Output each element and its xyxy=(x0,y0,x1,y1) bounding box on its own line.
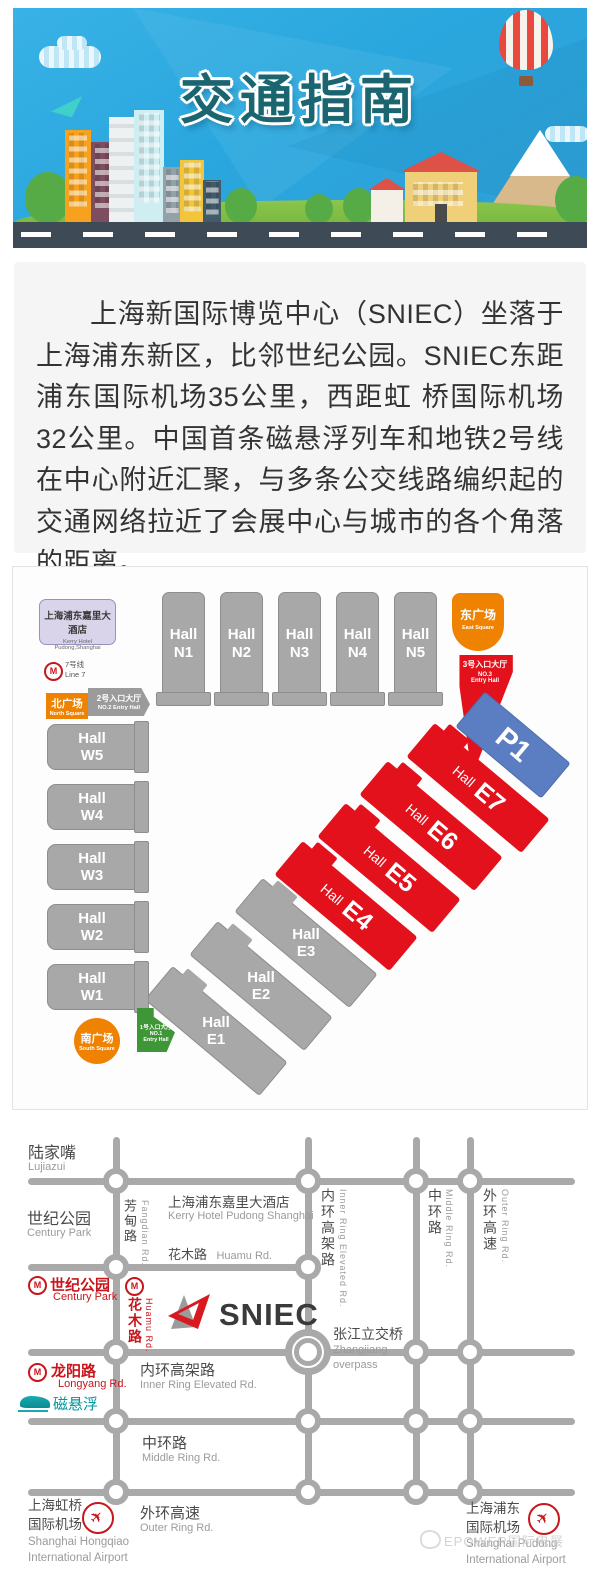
metro-icon xyxy=(125,1277,144,1296)
lujiazui-label: 陆家嘴 xyxy=(28,1139,76,1163)
junction xyxy=(403,1408,429,1434)
page-title: 交通指南 xyxy=(13,58,587,134)
middle-ring-h-label-en: Middle Ring Rd. xyxy=(142,1452,220,1464)
outer-ring-v-label: 外环高速 xyxy=(480,1188,500,1252)
hongqiao-airport-label-en2: International Airport xyxy=(28,1552,128,1564)
junction xyxy=(103,1168,129,1194)
metro-icon xyxy=(28,1276,47,1295)
hall-e2-label: HallE2 xyxy=(231,969,291,1004)
hall-e1-label: HallE1 xyxy=(186,1014,246,1049)
junction xyxy=(295,1408,321,1434)
maglev-label: 磁悬浮 xyxy=(53,1393,98,1414)
inner-ring-h-label-en: Inner Ring Elevated Rd. xyxy=(140,1379,257,1391)
century-park-label: 世纪公园 xyxy=(27,1205,91,1229)
venue-map-card: 上海浦东嘉里大酒店 Kerry Hotel Pudong,Shanghai 7号… xyxy=(12,566,588,1110)
fangdian-rd-label: 芳甸路 xyxy=(120,1199,139,1244)
inner-ring-v-label-en: Inner Ring Elevated Rd. xyxy=(338,1189,348,1308)
pudong-airport-label-en2: International Airport xyxy=(466,1554,566,1566)
hall-w3: HallW3 xyxy=(47,844,137,890)
hall-n3: HallN3 xyxy=(278,592,321,695)
hongqiao-airport-label: 上海虹桥 国际机场 xyxy=(28,1497,82,1535)
hall-w1: HallW1 xyxy=(47,964,137,1010)
hall-n2: HallN2 xyxy=(220,592,263,695)
cloud-icon xyxy=(57,36,87,50)
inner-ring-v-label: 内环高架路 xyxy=(318,1188,338,1268)
outer-ring-h-label: 外环高速 xyxy=(140,1502,200,1523)
hall-n1: HallN1 xyxy=(162,592,205,695)
road-huamu xyxy=(28,1264,312,1271)
middle-ring-v-label-en: Middle Ring Rd. xyxy=(444,1189,454,1268)
outer-ring-v-label-en: Outer Ring Rd. xyxy=(500,1189,510,1263)
junction xyxy=(103,1408,129,1434)
line7-label: 7号线 Line 7 xyxy=(65,660,85,680)
metro-icon xyxy=(28,1363,47,1382)
kerry-hotel-box: 上海浦东嘉里大酒店 Kerry Hotel Pudong,Shanghai xyxy=(39,599,116,645)
sniec-logo-icon xyxy=(163,1283,215,1331)
huamu-station: 花木路 xyxy=(125,1297,145,1345)
junction xyxy=(457,1339,483,1365)
south-square: 南广场 South Square xyxy=(74,1018,120,1064)
junction xyxy=(403,1479,429,1505)
zhangjiang-label-en1: Zhangjiang xyxy=(333,1344,387,1356)
zhangjiang-label: 张江立交桥 xyxy=(333,1324,403,1344)
outer-ring-h-label-en: Outer Ring Rd. xyxy=(140,1522,213,1534)
road-dashes xyxy=(21,232,579,237)
hall-n5: HallN5 xyxy=(394,592,437,695)
metro-icon xyxy=(44,662,63,681)
maglev-icon xyxy=(20,1396,50,1408)
junction xyxy=(403,1339,429,1365)
banner-illustration: 交通指南 xyxy=(13,8,587,248)
building xyxy=(180,160,204,222)
tree-icon xyxy=(305,194,333,224)
building xyxy=(109,117,135,222)
hall-w4: HallW4 xyxy=(47,784,137,830)
kerry-hotel-en: Kerry Hotel Pudong,Shanghai xyxy=(40,639,115,651)
zhangjiang-label-en2: overpass xyxy=(333,1359,378,1371)
building xyxy=(163,167,181,222)
entry-hall-2: 2号入口大厅 NO.2 Entry Hall xyxy=(88,688,150,716)
intro-card: 上海新国际博览中心（SNIEC）坐落于上海浦东新区，比邻世纪公园。SNIEC东距… xyxy=(14,262,586,553)
junction xyxy=(103,1479,129,1505)
sniec-wordmark: SNIEC xyxy=(219,1297,319,1333)
junction xyxy=(295,1479,321,1505)
huamu-station-en: Huamu Rd. xyxy=(144,1298,154,1353)
watermark-mascot-icon xyxy=(420,1530,441,1549)
middle-ring-v-label: 中环路 xyxy=(425,1188,445,1236)
zhangjiang-overpass-junction xyxy=(285,1329,331,1375)
huamu-rd-label: 花木路 Huamu Rd. xyxy=(168,1244,272,1264)
middle-ring-h-label: 中环路 xyxy=(142,1432,187,1453)
house xyxy=(405,172,477,222)
header-banner: 交通指南 xyxy=(0,0,600,248)
fangdian-rd-label-en: Fangdian Rd. xyxy=(140,1200,150,1266)
hall-e3-label: HallE3 xyxy=(276,926,336,961)
inner-ring-h-label: 内环高架路 xyxy=(140,1359,215,1380)
kerry-hotel-label-en: Kerry Hotel Pudong Shanghai xyxy=(168,1210,314,1222)
watermark: EPOWER国际电展 xyxy=(420,1530,564,1550)
airport-icon xyxy=(82,1502,114,1534)
hongqiao-airport-label-en1: Shanghai Hongqiao xyxy=(28,1536,129,1548)
hall-w5: HallW5 xyxy=(47,724,137,770)
century-park-label-en: Century Park xyxy=(27,1227,91,1239)
century-park-station-en: Century Park xyxy=(53,1291,117,1303)
intro-paragraph: 上海新国际博览中心（SNIEC）坐落于上海浦东新区，比邻世纪公园。SNIEC东距… xyxy=(36,294,564,585)
kerry-hotel-cn: 上海浦东嘉里大酒店 xyxy=(40,608,115,636)
tree-icon xyxy=(225,188,257,224)
road-map: 陆家嘴 Lujiazui 世纪公园 Century Park 上海浦东嘉里大酒店… xyxy=(0,1128,600,1569)
lujiazui-label-en: Lujiazui xyxy=(28,1161,65,1173)
east-square: 东广场 East Square xyxy=(452,593,504,651)
building xyxy=(65,130,91,222)
house-small xyxy=(371,190,403,222)
building xyxy=(203,180,221,222)
building xyxy=(134,110,164,222)
hall-w2: HallW2 xyxy=(47,904,137,950)
hall-n4: HallN4 xyxy=(336,592,379,695)
kerry-hotel-label: 上海浦东嘉里大酒店 xyxy=(168,1191,290,1211)
north-square: 北广场 North Square xyxy=(46,693,88,719)
junction xyxy=(457,1408,483,1434)
longyang-station-en: Longyang Rd. xyxy=(58,1378,127,1390)
